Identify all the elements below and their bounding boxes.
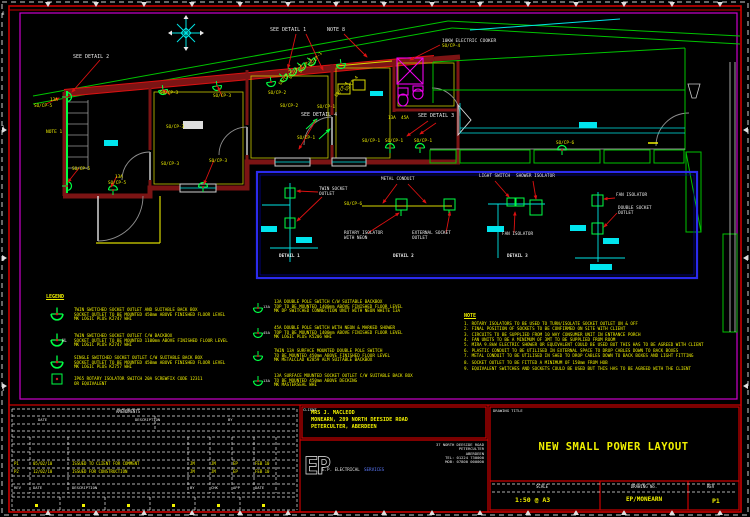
plan-label: SO/CP-6 [556,142,574,147]
client-address-1: MONEARN, 289 NORTH DEESIDE ROAD [311,417,408,423]
plan-label: SO/CP-5 [34,105,52,110]
revision-cell: 12/02/10 [33,470,52,475]
plan-label: HL [62,339,67,344]
legend-item: 13A DOUBLE POLE SWITCH C/W SUITABLE BACK… [274,300,403,314]
scale-value: 1:50 @ A3 [515,496,550,504]
revision-cell: JM [211,462,216,467]
detail4-fan-isolator-label: FAN ISOLATOR [616,194,647,199]
rev-label: REV [707,484,714,489]
revision-cell: FEB 10 [255,462,269,467]
revision-header: APP [233,486,240,490]
plan-label: 45A [263,331,270,335]
plan-label: SO/CP-3 [213,95,231,100]
drawing-no-label: DRAWING No. [600,484,688,489]
see-detail-4-label: SEE DETAIL 4 [301,113,337,119]
detail1-twin-socket-label: TWIN SOCKET OUTLET [319,188,347,198]
revision-cell: JM [190,462,195,467]
plan-label: SO/CP-6 [344,203,362,208]
client-address-2: PETERCULTER, ABERDEEN [311,424,377,430]
see-detail-2-label: SEE DETAIL 2 [73,55,109,61]
plan-label: SO/CP-5 [72,168,90,173]
plan-label: SO/CP-1 [362,140,380,145]
company-contact: 37 NORTH DEESIDE ROAD PETERCULTER ABERDE… [436,443,484,465]
revision-cell: ISSUED TO CLIENT FOR COMMENT [72,462,139,467]
plan-label: DATE [38,418,47,422]
revision-cell: ISSUED FOR CONSTRUCTION [72,470,127,475]
plan-label: SO/CP-1 [317,106,335,111]
revision-cell: FEB 10 [255,470,269,475]
drawing-title: NEW SMALL POWER LAYOUT [490,441,737,453]
revision-cell: EP [233,470,238,475]
company-name-2: SERVICES [364,468,384,473]
detail3-shower-isolator-label: SHOWER ISOLATOR [516,175,555,180]
client-label: CLIENT [303,408,317,412]
detail3-fan-isolator-label: FAN ISOLATOR [502,233,533,238]
note-1-ref-label: NOTE 1 [46,130,62,135]
detail-1-caption: DETAIL 1 [279,255,300,260]
rev-value: P1 [712,497,720,505]
drawing-title-label: DRAWING TITLE [493,409,523,413]
detail4-double-socket-label: DOUBLE SOCKET OUTLET [618,207,652,217]
detail-3-caption: DETAIL 3 [507,255,528,260]
plan-label: 13A [263,379,270,383]
legend-item: 13A SURFACE MOUNTED SOCKET OUTLET C/W SU… [274,374,413,388]
notes-title: NOTE [464,313,476,319]
client-name: MRS J. MACLEOD [311,410,355,416]
legend-item: TWIN SWITCHED SOCKET OUTLET AND SUITABLE… [74,308,225,322]
plan-label: 45A [401,117,409,122]
note-8-ref-label: NOTE 8 [327,28,345,34]
plan-label: AMENDMENTS [116,410,140,415]
revision-header: BY [190,486,195,490]
detail-2-caption: DETAIL 2 [393,255,414,260]
plan-label: 8 [2,12,4,17]
cad-drawing-sheet: EP LEGEND NOTE MRS J. MACLEOD MONEARN, 2… [0,0,750,517]
revision-cell: 05/02/10 [33,462,52,467]
revision-cell: P2 [14,470,19,475]
legend-title: LEGEND [46,294,64,300]
revision-cell: EP [233,462,238,467]
plan-label: 13A [263,305,270,309]
text-labels-layer: LEGEND NOTE MRS J. MACLEOD MONEARN, 289 … [0,0,750,517]
company-name: E.P. ELECTRICAL [322,468,360,473]
plan-label: SO/CP-3 [166,126,184,131]
detail2-metal-conduit-label: METAL CONDUIT [381,178,415,183]
plan-label: SO/CP-1 [414,140,432,145]
scale-label: SCALE [536,484,548,489]
see-detail-1-label: SEE DETAIL 1 [270,28,306,34]
revision-cell: JM [190,470,195,475]
legend-item: 45A DOUBLE POLE SWITCH WITH NEON & MARKE… [274,326,403,340]
plan-label: DESCRIPTION [135,418,160,422]
drawing-no-value: EP/MONEARN [600,496,688,503]
revision-header: REV [14,486,21,490]
plan-label: SO/CP-2 [268,92,286,97]
plan-label: SO/CP-3 [160,92,178,97]
plan-label: 3 [2,388,4,393]
plan-label: SO/CP-4 [345,76,360,93]
plan-label: SO/CP-1 [309,52,324,69]
legend-item: IP65 ROTARY ISOLATOR SWITCH 20A SCREWFIX… [74,377,203,386]
plan-label: 3 [2,126,4,131]
revision-header: DATE [33,486,42,490]
plan-label: 13A [388,117,396,122]
revision-cell: P1 [14,462,19,467]
plan-label: SO/CP-1 [297,137,315,142]
revision-cell: JM [211,470,216,475]
revision-header: CHK [211,486,218,490]
legend-item: TWIN SWITCHED SOCKET OUTLET C/W BACKBOX … [74,334,228,348]
legend-item: TWIN 13A SURFACE MOUNTED DOUBLE POLE SWI… [274,349,390,363]
note-item: 9. EQUIVALENT SWITCHES AND SOCKETS COULD… [464,367,691,372]
legend-item: SINGLE SWITCHED SOCKET OUTLET C/W SUITAB… [74,356,225,370]
plan-label: SO/CP-5 [108,182,126,187]
plan-label: SO/CP-3 [161,163,179,168]
plan-label: SO/CP-3 [209,160,227,165]
plan-label: 8 [2,258,4,263]
detail2-rotary-isolator-label: ROTARY ISOLATOR WITH NEON [344,232,383,242]
plan-label: BY [228,418,233,422]
plan-label: SO/CP-1 [385,140,403,145]
plan-label: SO/CP-2 [280,105,298,110]
note-item: 7. METAL CONDUIT TO BE UTILISED IN SHED … [464,354,693,359]
detail2-external-socket-label: EXTERNAL SOCKET OUTLET [412,232,451,242]
see-detail-3-label: SEE DETAIL 3 [418,114,454,120]
cooker-circuit-label: SO/CP-4 [442,45,460,50]
revision-header: DESCRIPTION [72,486,97,490]
detail3-light-switch-label: LIGHT SWITCH [479,175,510,180]
revision-header: DATE [255,486,264,490]
